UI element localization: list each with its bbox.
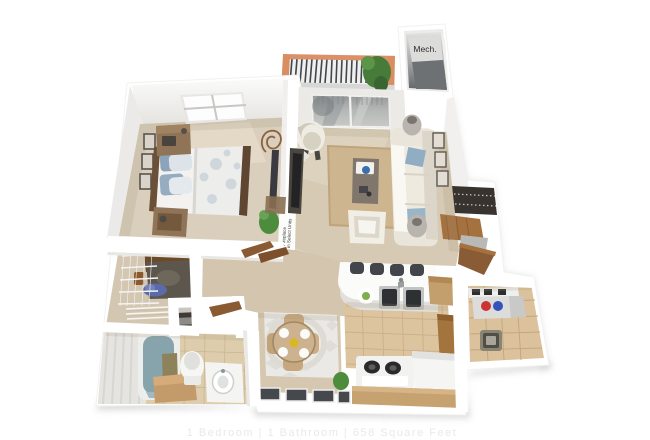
- svg-text:Mech.: Mech.: [413, 44, 436, 54]
- svg-text:1 Bedroom | 1 Bathroom | 6: 1 Bedroom | 1 Bathroom | 658 Square Feet: [187, 427, 458, 439]
